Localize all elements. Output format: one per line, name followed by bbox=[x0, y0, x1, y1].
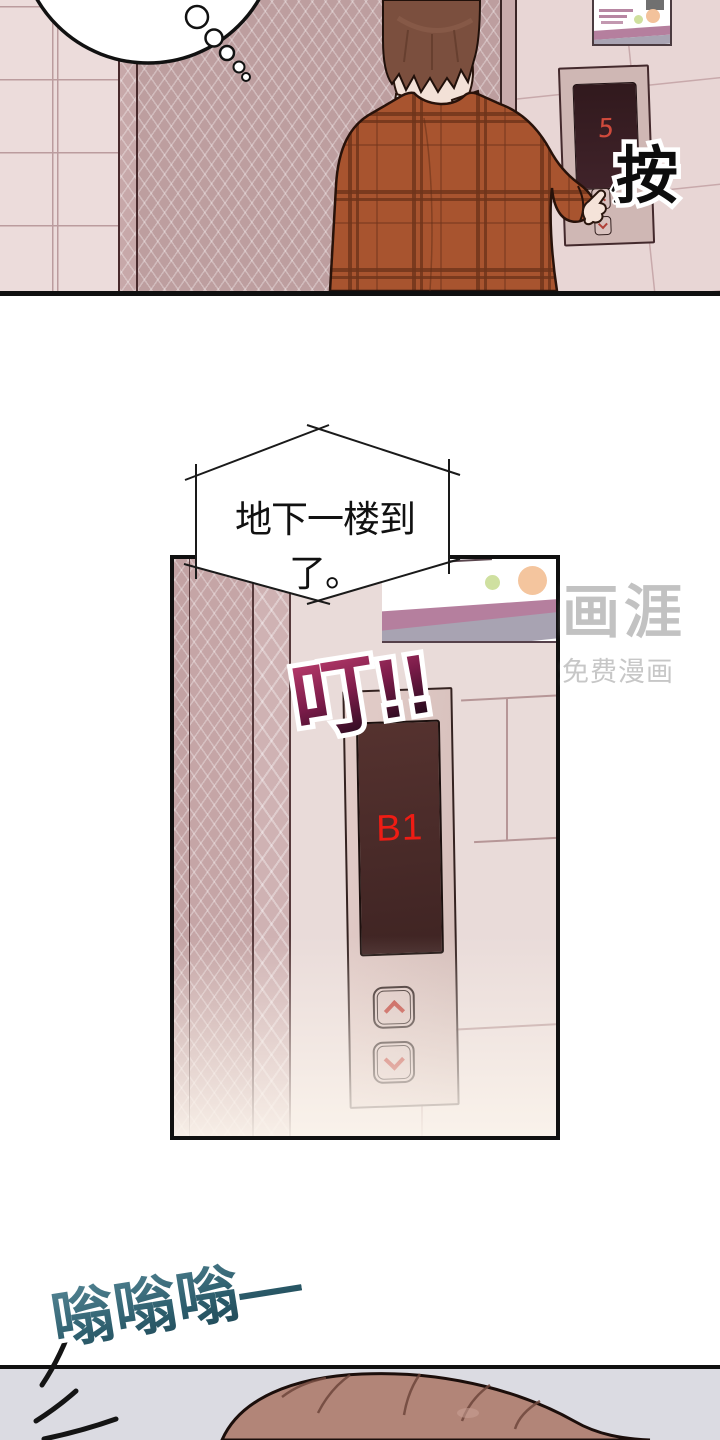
call-up-button bbox=[591, 188, 611, 210]
elevator-door bbox=[138, 0, 500, 291]
panel-elevator-arrival: B1 叮!! 叮!! bbox=[170, 555, 560, 1140]
watermark: 画涯 免费漫画 bbox=[562, 584, 686, 689]
wall-poster bbox=[592, 0, 672, 46]
speed-lines bbox=[36, 1391, 116, 1439]
sign-dot-orange bbox=[518, 566, 547, 595]
call-down-button bbox=[594, 216, 612, 236]
watermark-tagline: 免费漫画 bbox=[562, 650, 686, 689]
hair bbox=[222, 1374, 650, 1440]
light-fade bbox=[174, 936, 556, 1136]
door-edge bbox=[500, 0, 517, 291]
floor-number: B1 bbox=[359, 806, 440, 851]
chevron-down-icon bbox=[598, 219, 608, 229]
watermark-logo: 画涯 bbox=[562, 584, 686, 642]
sfx-ding: 叮!! 叮!! bbox=[286, 641, 437, 746]
elevator-door-frame bbox=[118, 0, 138, 291]
floor-display-b1: B1 bbox=[356, 720, 444, 957]
tile-wall-left bbox=[0, 0, 120, 291]
chevron-up-icon bbox=[596, 195, 606, 205]
poster-dot-green bbox=[634, 15, 643, 24]
character-head-top bbox=[0, 1369, 720, 1440]
sfx-press: 按 按 bbox=[616, 146, 678, 208]
panel-next-scene bbox=[0, 1365, 720, 1440]
poster-dot-orange bbox=[646, 9, 660, 23]
floor-number: 5 bbox=[574, 113, 638, 145]
comic-page: 5 bbox=[0, 0, 720, 1440]
panel-elevator-hall: 5 bbox=[0, 0, 720, 296]
sign-dot-green bbox=[485, 575, 500, 590]
speech-text: 地下一楼到了。 bbox=[200, 489, 450, 597]
sfx-buzz: 嗡嗡嗡— 嗡嗡嗡— bbox=[47, 1253, 306, 1355]
